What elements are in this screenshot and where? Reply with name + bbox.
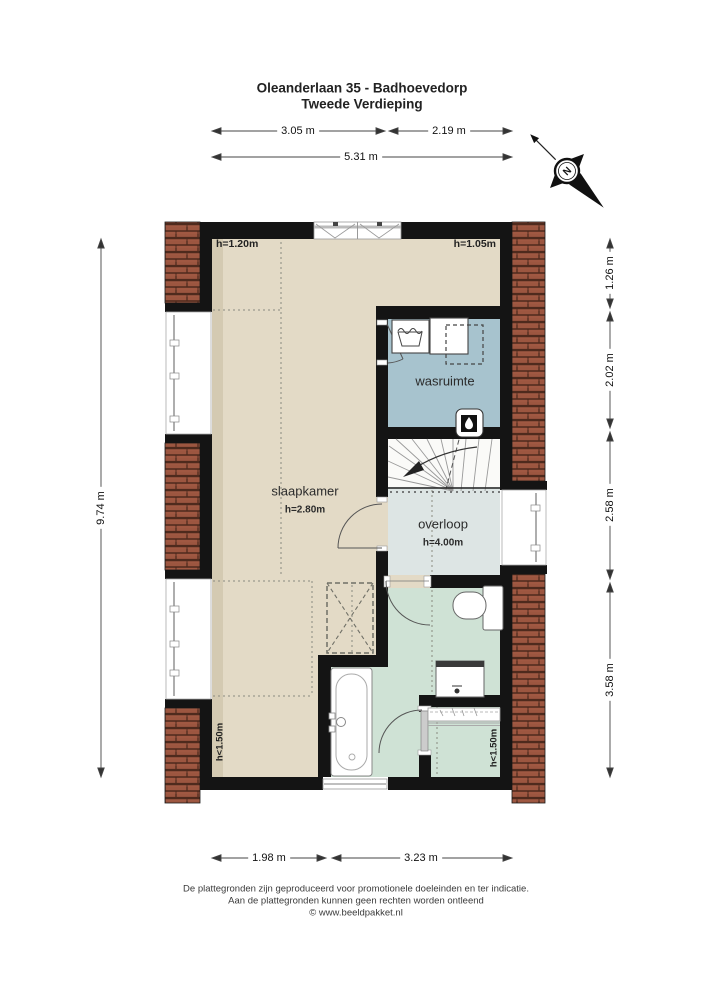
window-icon xyxy=(323,779,387,789)
room-height-slaapkamer: h=2.80m xyxy=(285,505,325,516)
room-label-wasruimte: wasruimte xyxy=(415,374,474,389)
dim-right-seg2: 2.02 m xyxy=(604,349,616,391)
window-icon xyxy=(166,579,211,699)
window-icon xyxy=(314,222,401,239)
radiator-icon xyxy=(428,708,500,726)
room-height-overloop: h=4.00m xyxy=(423,538,463,549)
dim-left-total: 9.74 m xyxy=(95,487,107,529)
height-label-bottom-left: h<1.50m xyxy=(215,723,226,761)
window-icon xyxy=(166,312,211,434)
footer-disclaimer-line1: De plattegronden zijn geproduceerd voor … xyxy=(183,884,529,895)
height-label-top-right: h=1.05m xyxy=(454,238,496,250)
height-label-top-left: h=1.20m xyxy=(216,238,258,250)
window-icon xyxy=(502,490,546,565)
laundry-tub-icon xyxy=(392,320,429,353)
dim-bottom-seg2: 3.23 m xyxy=(400,852,442,864)
floorplan-page: N Oleanderlaan 35 - Badhoevedorp Tweede … xyxy=(0,0,707,1000)
plan-title-line2: Tweede Verdieping xyxy=(301,97,422,112)
plan-title-line1: Oleanderlaan 35 - Badhoevedorp xyxy=(257,81,468,96)
dim-right-seg1: 1.26 m xyxy=(604,252,616,294)
dim-top-seg2: 2.19 m xyxy=(428,125,470,137)
washbasin-icon xyxy=(436,661,484,697)
room-label-overloop: overloop xyxy=(418,517,468,532)
dim-right-seg3: 2.58 m xyxy=(604,484,616,526)
dim-top-total: 5.31 m xyxy=(340,151,382,163)
boiler-flame-icon xyxy=(456,409,483,437)
room-label-slaapkamer: slaapkamer xyxy=(271,484,338,499)
height-label-bottom-right: h<1.50m xyxy=(489,729,500,767)
dim-right-seg4: 3.58 m xyxy=(604,659,616,701)
bathtub-icon xyxy=(329,668,372,776)
footer-copyright: © www.beeldpakket.nl xyxy=(309,908,403,919)
dim-bottom-seg1: 1.98 m xyxy=(248,852,290,864)
dim-top-seg1: 3.05 m xyxy=(277,125,319,137)
north-compass-icon: N xyxy=(513,117,620,224)
footer-disclaimer-line2: Aan de plattegronden kunnen geen rechten… xyxy=(228,896,484,907)
